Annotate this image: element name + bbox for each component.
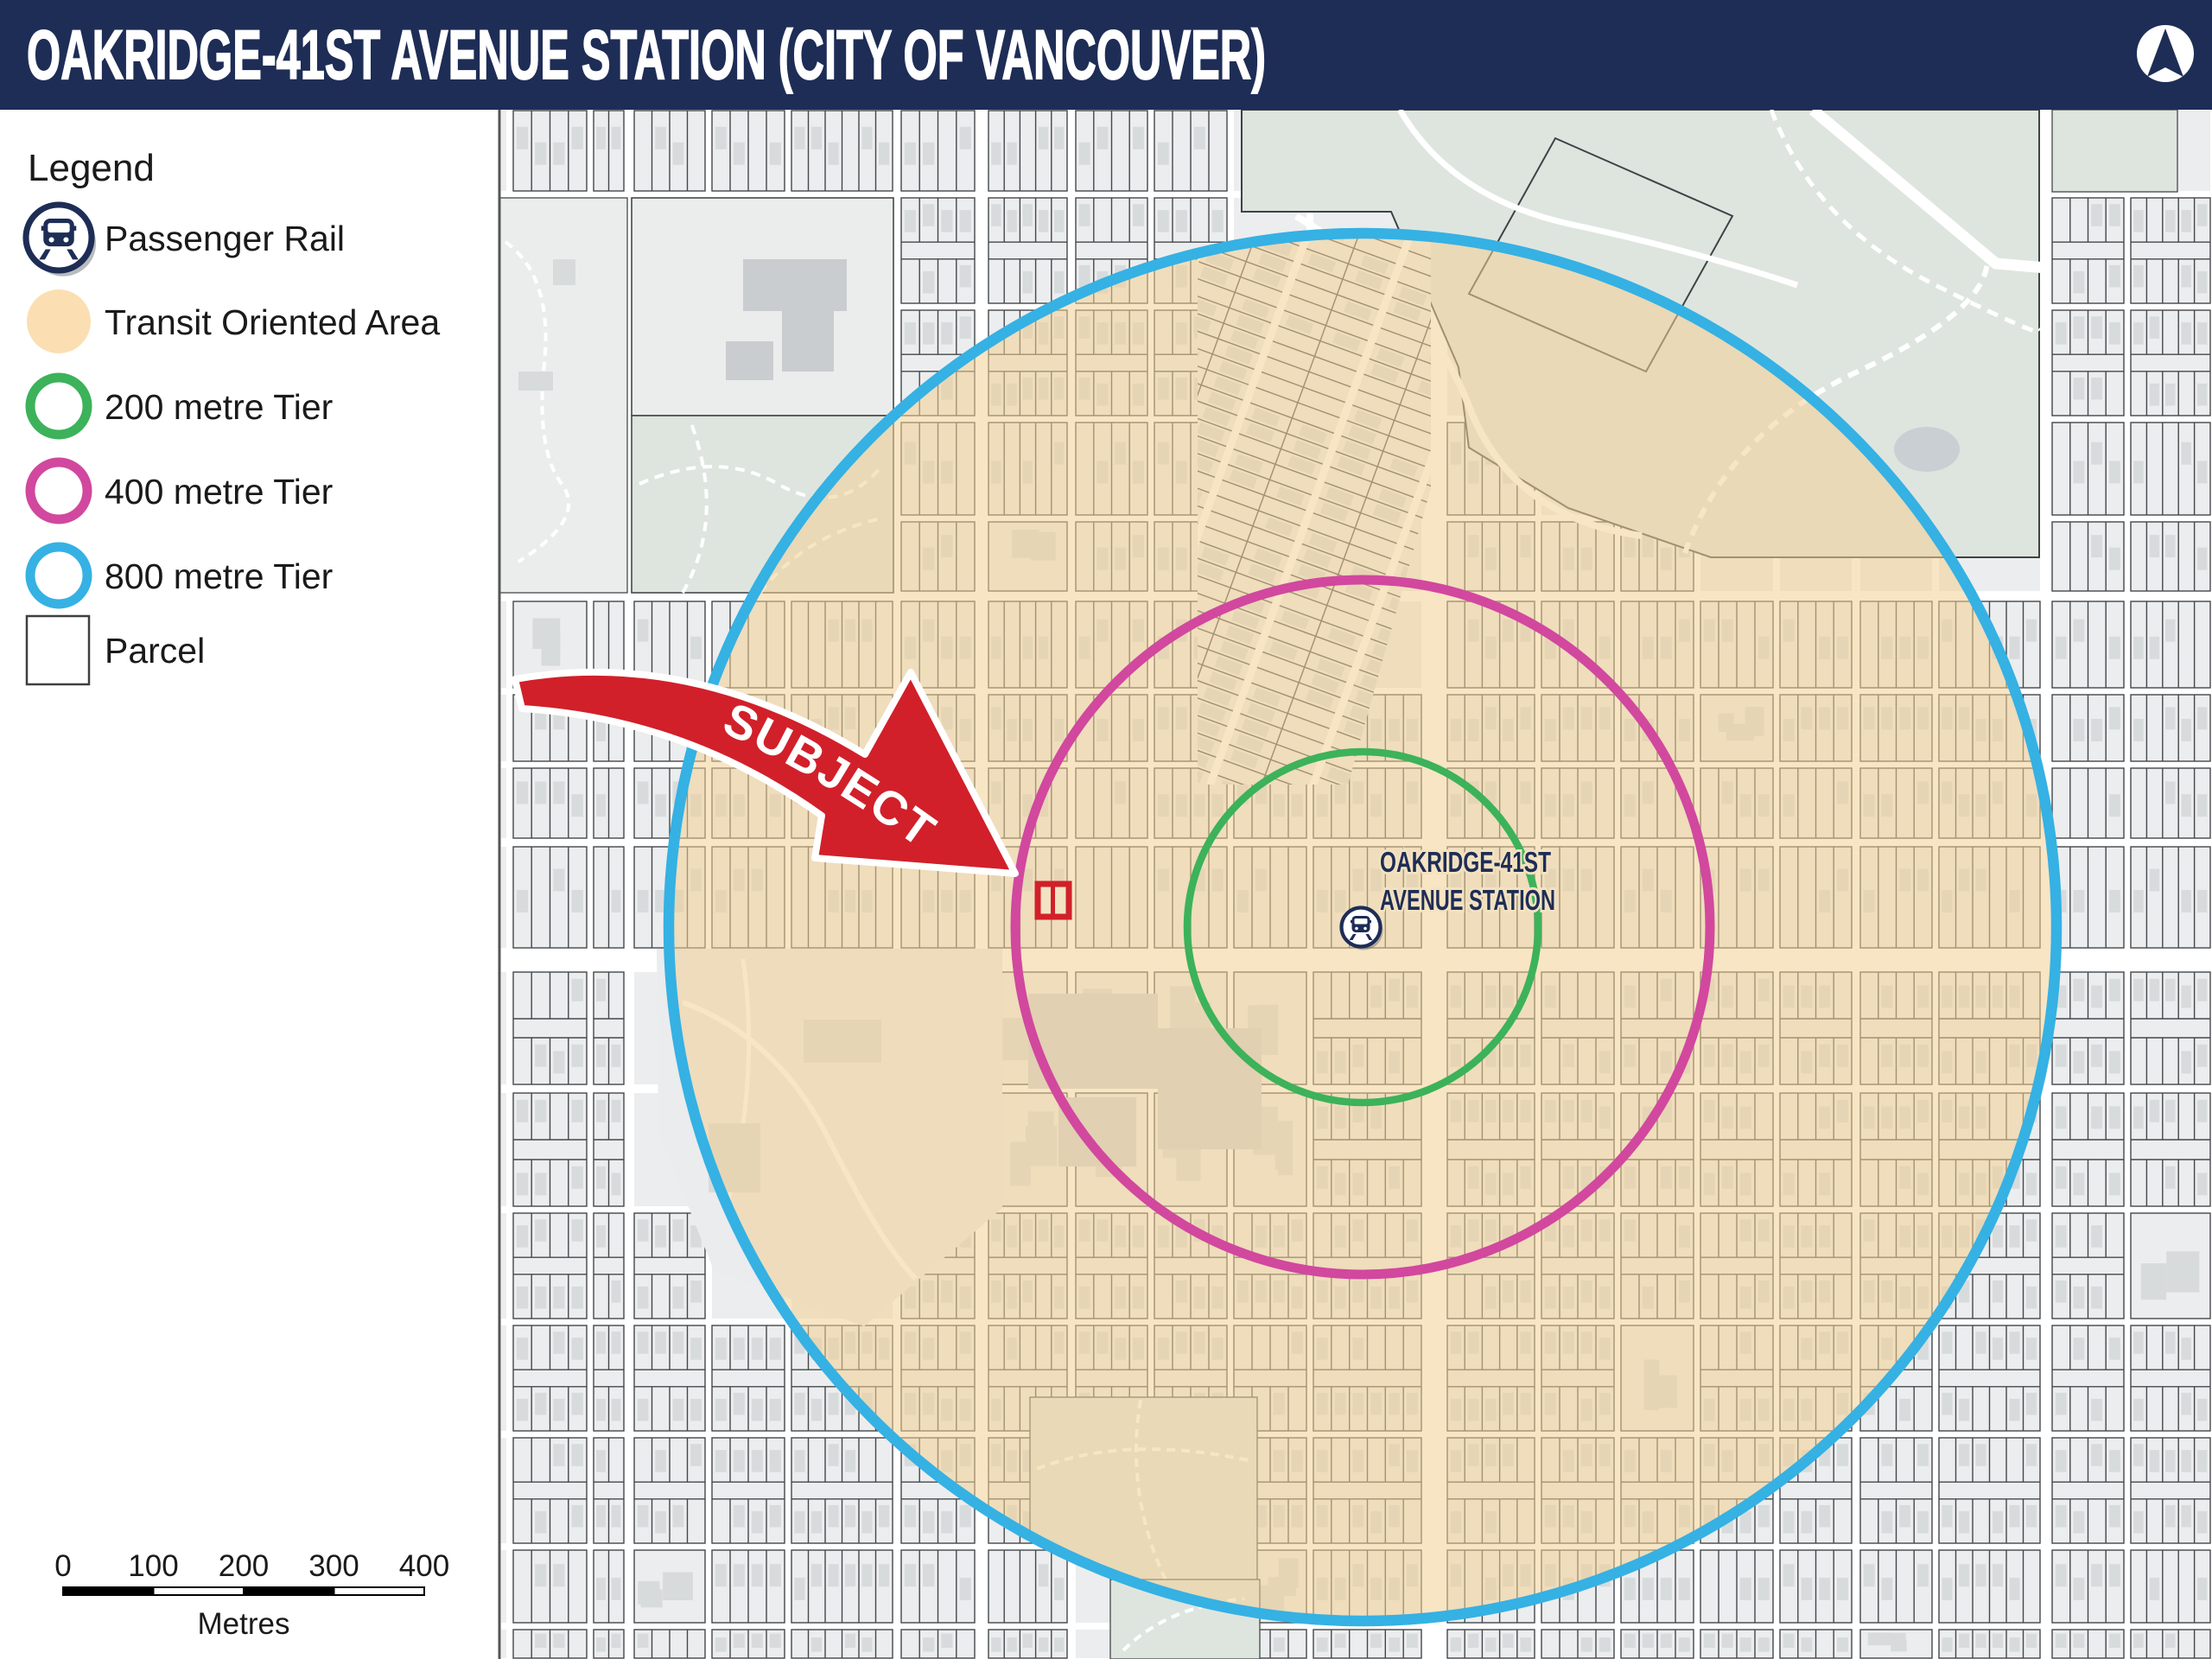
svg-text:0: 0 <box>54 1549 71 1583</box>
svg-text:400: 400 <box>399 1549 449 1583</box>
svg-text:OAKRIDGE-41ST AVENUE STATION (: OAKRIDGE-41ST AVENUE STATION (CITY OF VA… <box>27 16 1266 94</box>
svg-text:400 metre Tier: 400 metre Tier <box>105 472 333 512</box>
svg-text:AVENUE STATION: AVENUE STATION <box>1380 884 1555 916</box>
svg-text:Parcel: Parcel <box>105 631 205 671</box>
svg-text:800 metre Tier: 800 metre Tier <box>105 556 333 596</box>
svg-text:Metres: Metres <box>198 1607 290 1641</box>
svg-text:100: 100 <box>128 1549 178 1583</box>
svg-text:200 metre Tier: 200 metre Tier <box>105 387 333 427</box>
svg-text:300: 300 <box>308 1549 359 1583</box>
svg-text:Legend: Legend <box>28 147 155 189</box>
svg-text:200: 200 <box>219 1549 269 1583</box>
svg-text:Passenger Rail: Passenger Rail <box>105 219 345 258</box>
svg-text:OAKRIDGE-41ST: OAKRIDGE-41ST <box>1380 846 1551 878</box>
svg-text:Transit Oriented Area: Transit Oriented Area <box>105 302 440 342</box>
